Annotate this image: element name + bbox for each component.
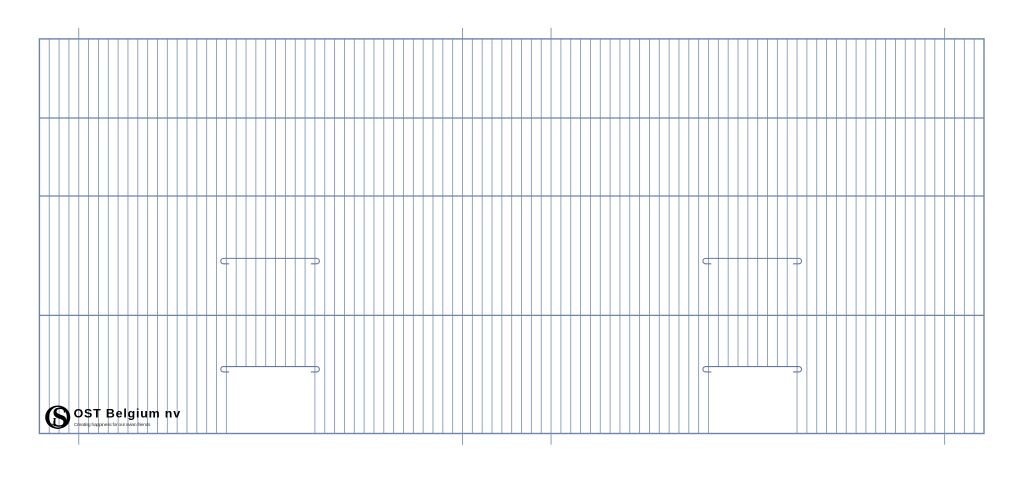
svg-text:J: J — [51, 417, 56, 428]
svg-text:OST Belgium nv: OST Belgium nv — [74, 407, 181, 421]
svg-text:Creating happiness for our avi: Creating happiness for our avian friends — [74, 422, 151, 428]
